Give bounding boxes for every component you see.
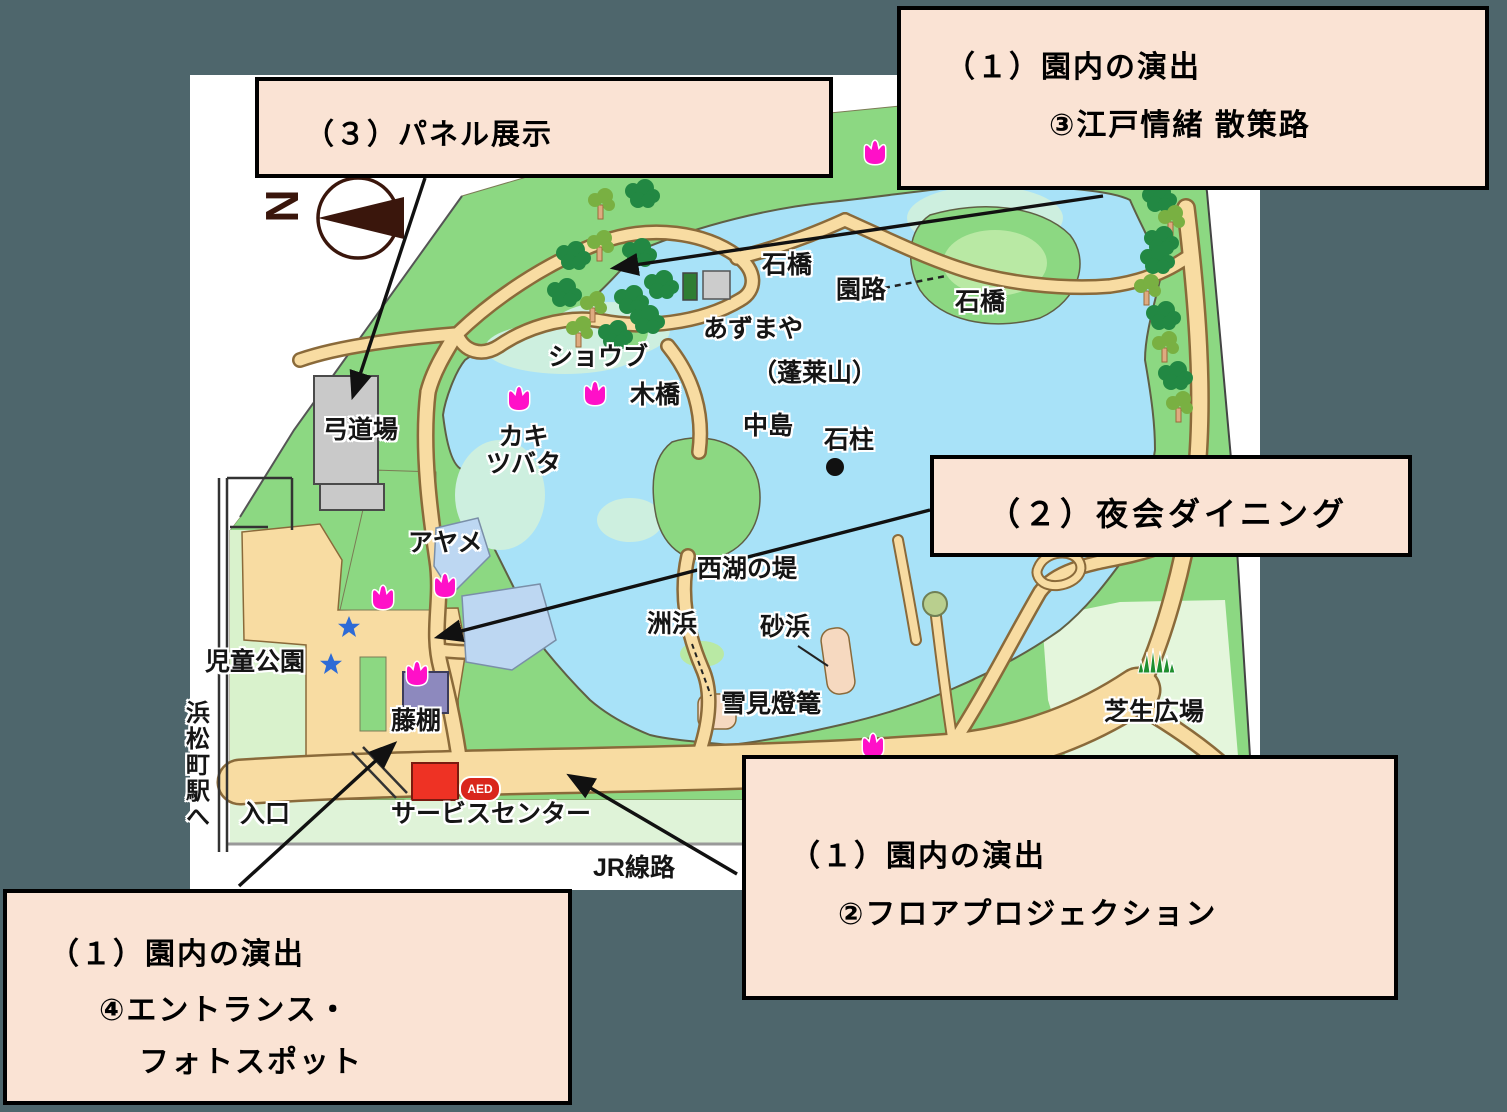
callout-line: ②フロアプロジェクション [838, 889, 1394, 933]
callout-ennai-ensyutsu-3-edo-stroll: （１）園内の演出 ③江戸情緒 散策路 [897, 6, 1489, 190]
callout-line: ③江戸情緒 散策路 [1049, 100, 1485, 144]
map-label-hamamatsucho-eki-e: 浜松町駅へ [182, 700, 207, 830]
callout-line: （１）園内の演出 [49, 929, 568, 973]
map-label-horaisan: （蓬莱山） [752, 360, 877, 387]
callout-line: フォトスポット [139, 1037, 568, 1081]
map-label-shobu: ショウブ [548, 344, 648, 371]
map-label-yukimi-toro: 雪見燈篭 [721, 691, 821, 718]
map-label-service-center: サービスセンター [391, 801, 591, 828]
callout-line: （３）パネル展示 [305, 111, 829, 153]
callout-line: （１）園内の演出 [945, 42, 1485, 86]
map-label-kibashi: 木橋 [630, 382, 680, 409]
map-label-iriguchi: 入口 [240, 801, 290, 828]
small-gray-structure [703, 271, 730, 299]
callout-entrance-photospot: （１）園内の演出 ④エントランス・ フォトスポット [3, 889, 572, 1105]
tulip-icon [407, 662, 427, 685]
map-label-kyudojo: 弓道場 [323, 417, 398, 444]
map-label-azumaya: あずまや [703, 316, 803, 343]
map-label-seiko-no-tsutsumi: 西湖の堤 [697, 556, 797, 583]
map-label-sekichu: 石柱 [824, 427, 874, 454]
tulip-icon [435, 574, 455, 597]
map-label-sunahama: 砂浜 [760, 614, 810, 641]
map-label-ayame: アヤメ [408, 530, 483, 557]
callout-line: （２）夜会ダイニング [988, 489, 1408, 535]
aed-badge: AED [459, 776, 501, 802]
tulip-icon [865, 141, 885, 164]
callout-panel-exhibit: （３）パネル展示 [255, 77, 833, 178]
slide-stage: 石橋園路石橋あずまや（蓬莱山）ショウブ木橋中島石柱カキ ツバタ弓道場アヤメ児童公… [0, 0, 1507, 1112]
stone-pillar-dot-icon [826, 458, 844, 476]
map-label-jr-senro: JR線路 [593, 855, 675, 882]
callout-floor-projection: （１）園内の演出 ②フロアプロジェクション [742, 755, 1398, 1000]
map-label-enro: 園路 [836, 277, 886, 304]
tulip-icon [585, 382, 605, 405]
tulip-icon [863, 734, 883, 757]
map-label-jido-koen: 児童公園 [205, 649, 305, 676]
tulip-icon [509, 387, 529, 410]
callout-line: （１）園内の演出 [790, 831, 1394, 875]
small-pond [923, 592, 947, 616]
map-label-shibafu-hiroba: 芝生広場 [1104, 699, 1204, 726]
map-label-nakajima: 中島 [743, 413, 793, 440]
small-green-structure [683, 273, 697, 300]
map-label-fujidana: 藤棚 [391, 708, 441, 735]
compass-north-letter: N [258, 182, 306, 230]
map-label-suhama: 洲浜 [647, 611, 697, 638]
tulip-icon [373, 586, 393, 609]
service-center-building [412, 763, 458, 800]
map-label-ishibashi-east: 石橋 [955, 289, 1005, 316]
map-label-kakitsubata: カキ ツバタ [486, 424, 561, 477]
callout-line: ④エントランス・ [99, 985, 568, 1029]
callout-yakai-dining: （２）夜会ダイニング [930, 455, 1412, 557]
kyudojo-building-annex [320, 484, 384, 510]
map-label-ishibashi-west: 石橋 [762, 252, 812, 279]
